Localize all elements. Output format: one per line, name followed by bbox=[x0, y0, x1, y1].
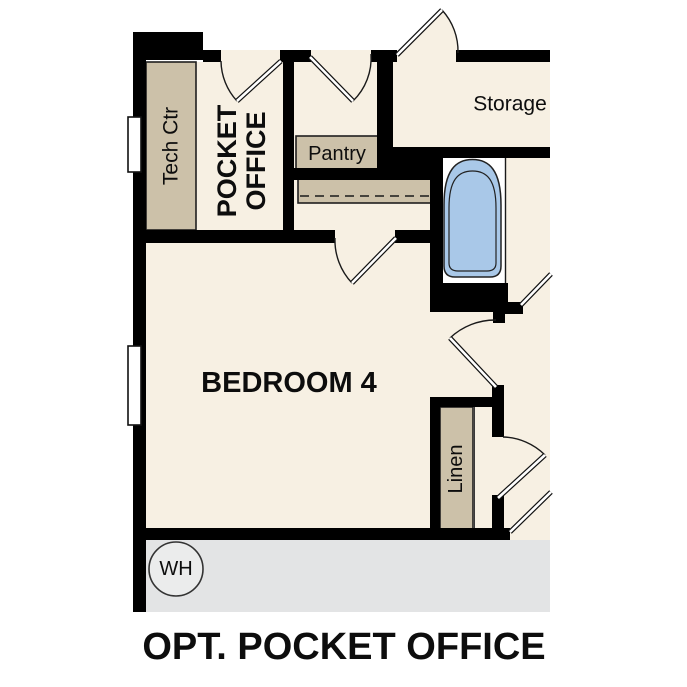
doorway-threshold bbox=[221, 50, 280, 62]
wall bbox=[203, 50, 221, 62]
linen-label: Linen bbox=[445, 445, 467, 494]
window bbox=[128, 346, 141, 425]
pocket-office-label-line1: POCKET bbox=[212, 104, 242, 217]
storage-label: Storage bbox=[473, 93, 547, 116]
bathtub bbox=[444, 160, 501, 278]
pantry-counter bbox=[298, 178, 431, 203]
pocket-office-label-line2: OFFICE bbox=[241, 112, 271, 211]
water-heater-label: WH bbox=[159, 558, 192, 580]
bath-alcove bbox=[443, 158, 506, 284]
wall bbox=[395, 230, 443, 243]
wall bbox=[283, 52, 294, 232]
plan-caption: OPT. POCKET OFFICE bbox=[142, 626, 545, 668]
bedroom-4-label: BEDROOM 4 bbox=[201, 367, 377, 399]
pantry-label: Pantry bbox=[308, 143, 366, 165]
window bbox=[128, 117, 141, 172]
wall bbox=[456, 50, 550, 62]
floor-plan-canvas: WH Tech Ctr POCKET OFFICE Pantry Storage… bbox=[0, 0, 687, 687]
tech-ctr-label: Tech Ctr bbox=[160, 107, 183, 185]
wall bbox=[133, 230, 335, 243]
wall bbox=[430, 397, 440, 540]
wall bbox=[493, 312, 505, 323]
wall bbox=[492, 385, 504, 437]
wall bbox=[133, 528, 510, 540]
doorway-threshold bbox=[311, 50, 371, 62]
garage-floor bbox=[146, 540, 550, 612]
wall bbox=[294, 168, 443, 180]
water-heater-symbol: WH bbox=[149, 542, 203, 596]
floor-plan: WH Tech Ctr POCKET OFFICE Pantry Storage… bbox=[0, 0, 687, 687]
wall bbox=[377, 147, 550, 158]
